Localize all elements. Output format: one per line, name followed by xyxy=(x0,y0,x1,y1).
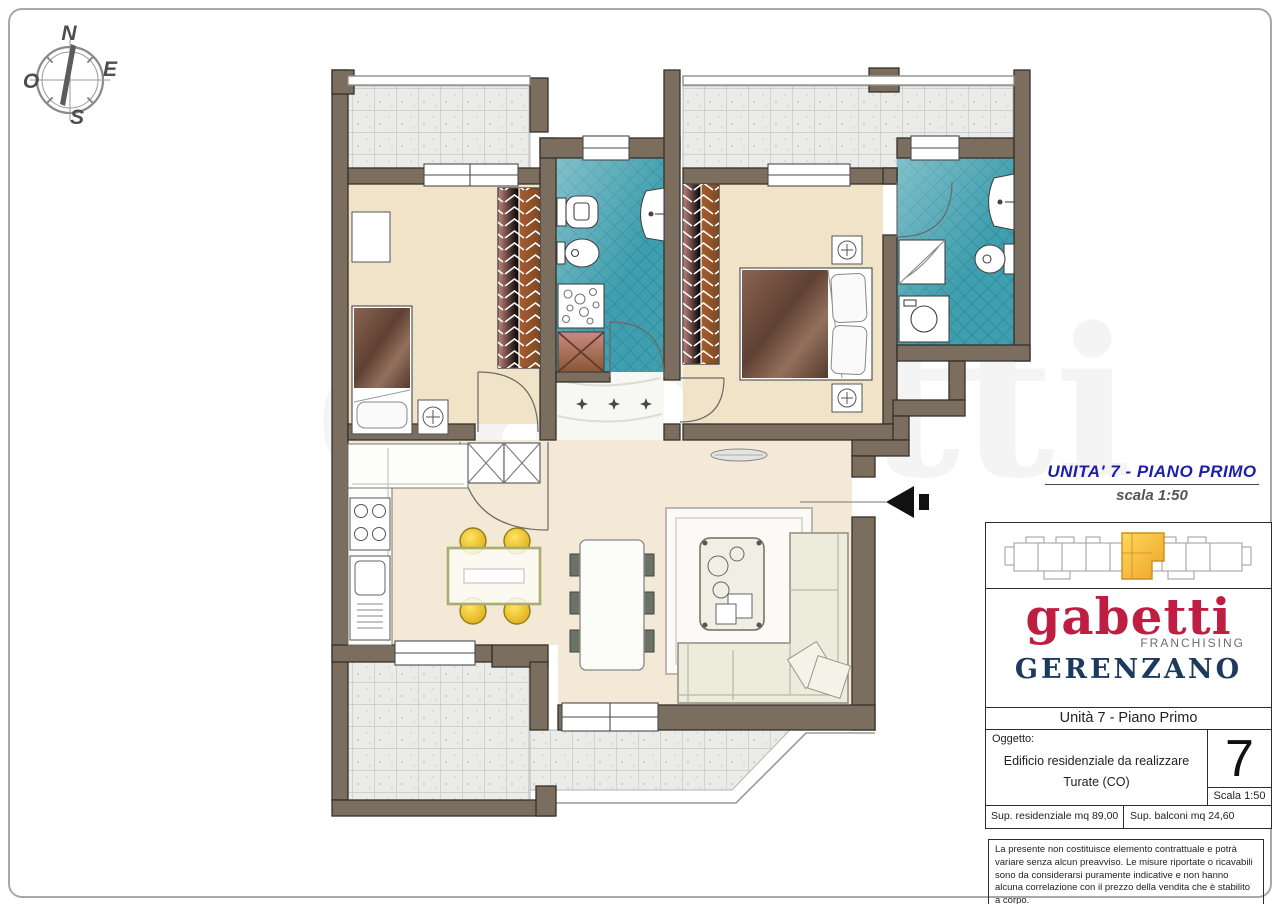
bedroom1-window xyxy=(424,164,518,186)
object-label: Oggetto: xyxy=(992,733,1201,745)
double-bed-icon xyxy=(740,268,872,380)
nightstand-icon xyxy=(832,236,862,264)
compass-rose: N E S O xyxy=(23,22,118,129)
scale-label: Scala 1:50 xyxy=(1208,787,1271,805)
logo-row: gabetti FRANCHISING GERENZANO xyxy=(986,589,1271,708)
bath-sink-icon xyxy=(989,174,1016,230)
compass-west: O xyxy=(23,70,39,93)
bathroom1-window xyxy=(583,136,629,160)
nightstand-icon xyxy=(418,400,448,434)
washing-machine-icon xyxy=(899,296,949,342)
dining-table xyxy=(580,540,644,670)
living-window xyxy=(562,703,658,731)
toilet-icon xyxy=(975,244,1014,274)
wardrobe-icon xyxy=(498,188,540,368)
unit-number-cell: 7 Scala 1:50 xyxy=(1208,730,1271,805)
agency-name: GERENZANO xyxy=(986,654,1271,685)
key-plan-drawing xyxy=(986,523,1270,586)
stove-icon xyxy=(350,498,390,550)
surface-row: Sup. residenziale mq 89,00 Sup. balconi … xyxy=(986,806,1271,828)
object-line1: Edificio residenziale da realizzare xyxy=(992,751,1201,772)
coffee-table-icon xyxy=(700,538,764,630)
floorplan-page: gabetti N E S O xyxy=(0,0,1280,904)
kitchen-window xyxy=(395,641,475,665)
terrace-bottom-left xyxy=(348,662,530,800)
surface-residential: Sup. residenziale mq 89,00 xyxy=(986,806,1124,828)
shaft-icon xyxy=(558,332,604,372)
object-line2: Turate (CO) xyxy=(992,772,1201,793)
plan-title: UNITA' 7 - PIANO PRIMO xyxy=(1045,462,1258,485)
shower-icon xyxy=(558,284,604,328)
highlighted-unit xyxy=(1122,533,1164,579)
kitchen-sink-icon xyxy=(350,556,390,640)
desk-icon xyxy=(352,212,390,262)
hall-closet-icon xyxy=(468,443,540,483)
unit-line: Unità 7 - Piano Primo xyxy=(986,708,1271,730)
unit-number: 7 xyxy=(1208,730,1271,787)
bidet-icon xyxy=(557,239,599,267)
shower-icon xyxy=(899,240,945,284)
single-bed-icon xyxy=(352,306,412,434)
bathroom2-window xyxy=(911,136,959,160)
disclaimer-box: La presente non costituisce elemento con… xyxy=(988,839,1264,904)
radiator-icon xyxy=(711,449,767,461)
parapets xyxy=(348,76,1014,85)
dining-set-icon xyxy=(570,540,654,670)
plan-annotation: UNITA' 7 - PIANO PRIMO scala 1:50 xyxy=(1032,462,1272,504)
bath-sink-icon xyxy=(641,188,666,241)
wardrobe-icon xyxy=(683,184,719,364)
toilet-icon xyxy=(557,196,598,228)
nightstand-icon xyxy=(832,384,862,412)
title-block: gabetti FRANCHISING GERENZANO Unità 7 - … xyxy=(985,522,1272,829)
object-cell: Oggetto: Edificio residenziale da realiz… xyxy=(986,730,1208,805)
bedroom2-window xyxy=(768,164,850,186)
plan-scale: scala 1:50 xyxy=(1032,487,1272,504)
surface-balconies: Sup. balconi mq 24,60 xyxy=(1124,806,1271,828)
object-row: Oggetto: Edificio residenziale da realiz… xyxy=(986,730,1271,806)
terrace-top-left xyxy=(348,86,530,168)
compass-east: E xyxy=(103,58,118,81)
terrace-bottom-strip xyxy=(530,730,790,790)
compass-south: S xyxy=(70,106,84,129)
compass-north: N xyxy=(61,22,77,45)
key-plan-row xyxy=(986,523,1271,589)
